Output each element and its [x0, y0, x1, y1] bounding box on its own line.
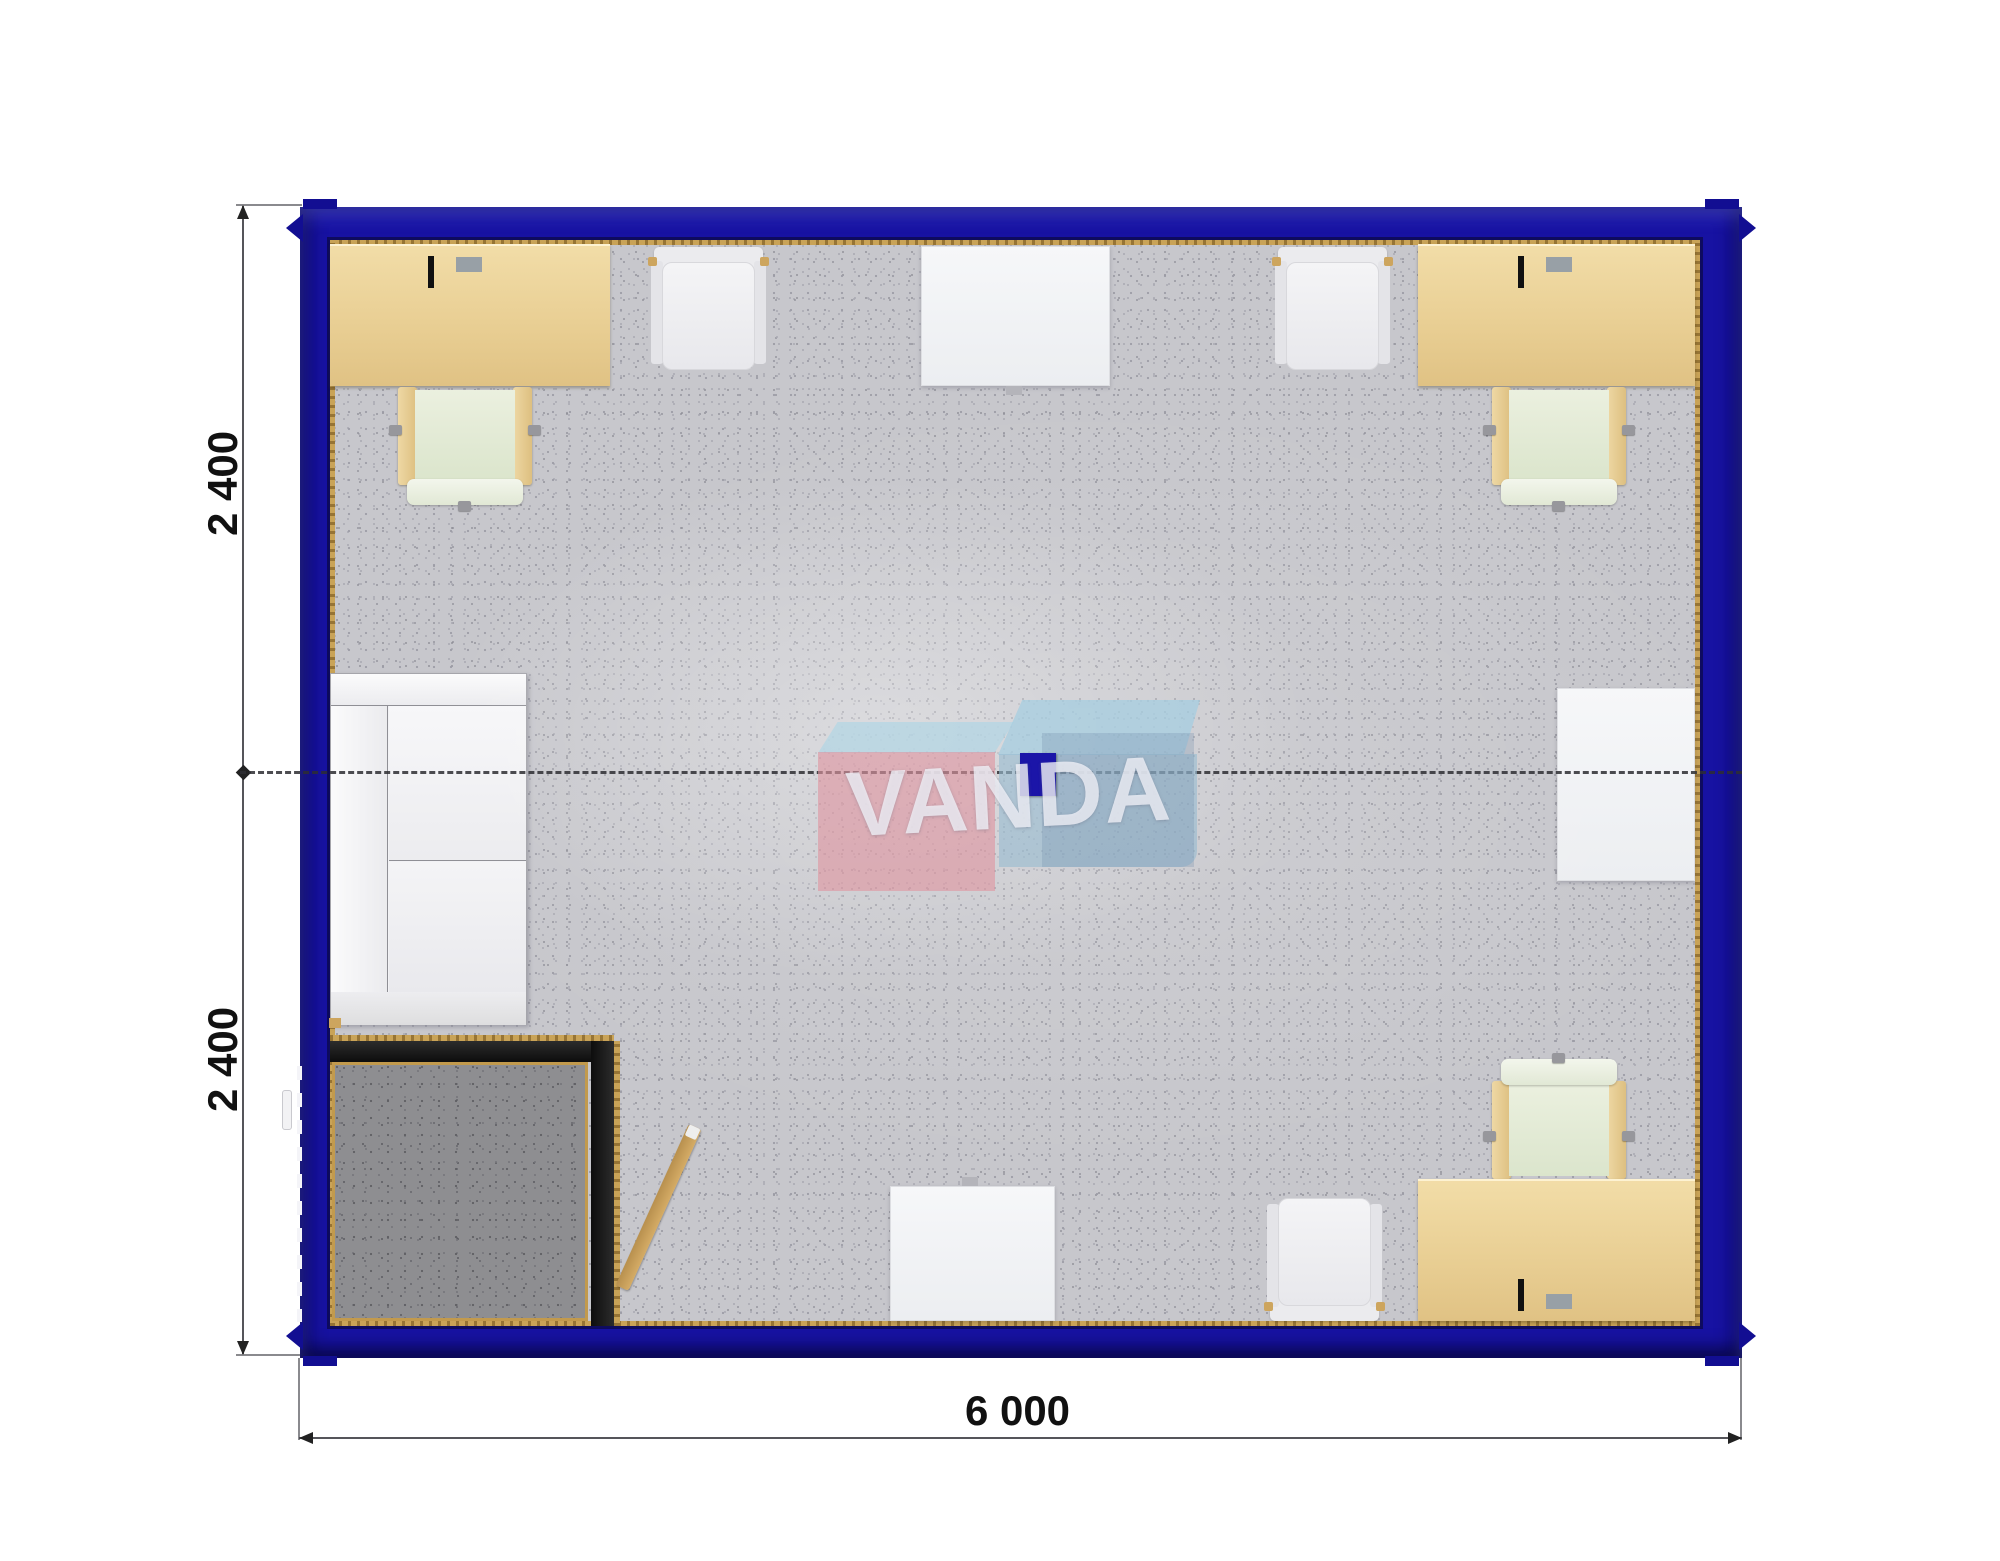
sofa-cushion — [389, 706, 526, 861]
extension-line-bottomleft — [298, 1358, 300, 1440]
dimension-label-height-bottom: 2 400 — [202, 1022, 244, 1112]
chair-armrest — [1378, 261, 1390, 364]
exterior-door-handle — [282, 1090, 292, 1130]
laptop-keyboard — [1518, 1279, 1524, 1311]
chair-seat — [662, 262, 755, 370]
exterior-door-dashes — [297, 1066, 302, 1322]
corner-tab-bottom-right — [1705, 1356, 1739, 1366]
office-chair-top-right — [1492, 387, 1626, 505]
office-chair-top-left — [398, 387, 532, 505]
white-chair-bottom — [1267, 1198, 1382, 1321]
vestibule-wall-top — [330, 1041, 614, 1062]
chair-armrest — [1370, 1204, 1382, 1307]
chair-foot — [648, 257, 657, 266]
laptop-icon — [428, 256, 510, 336]
sofa — [330, 673, 527, 1025]
chair-caster — [1622, 1131, 1635, 1141]
sofa-armrest — [331, 674, 526, 706]
dim-arrow-left — [299, 1432, 313, 1444]
chair-foot — [1384, 257, 1393, 266]
dimension-label-width: 6 000 — [955, 1390, 1080, 1432]
white-chair-top-left — [651, 247, 766, 370]
chair-seat — [1278, 1198, 1371, 1306]
chair-seat — [1509, 390, 1609, 480]
chair-caster — [528, 425, 541, 435]
corner-notch-top-right — [1739, 214, 1756, 242]
floor-plan: 2 400 2 400 6 000 — [0, 0, 2000, 1561]
white-table-bottom — [890, 1186, 1055, 1321]
dim-arrow-top — [237, 205, 249, 219]
vestibule-floor-carpet — [332, 1062, 588, 1321]
chair-caster — [389, 425, 402, 435]
dim-arrow-right — [1728, 1432, 1742, 1444]
laptop-touchpad — [456, 257, 482, 272]
chair-armrest — [513, 387, 532, 485]
sofa-skirt — [331, 992, 526, 1025]
vestibule-wall-right — [591, 1041, 614, 1326]
chair-seat — [1509, 1084, 1609, 1176]
chair-seat — [415, 390, 515, 480]
corner-notch-top-left — [286, 214, 303, 242]
dimension-label-height-top: 2 400 — [202, 446, 244, 536]
chair-foot — [1376, 1302, 1385, 1311]
dim-arrow-bottom — [237, 1341, 249, 1355]
chair-caster — [458, 501, 471, 511]
chair-caster — [1483, 1131, 1496, 1141]
corner-notch-bottom-left — [286, 1322, 303, 1350]
table-leg — [1006, 386, 1022, 395]
laptop-icon — [1518, 256, 1600, 336]
white-chair-top-right — [1275, 247, 1390, 370]
chair-foot — [760, 257, 769, 266]
laptop-keyboard — [428, 256, 434, 288]
chair-seat — [1286, 262, 1379, 370]
corner-tab-top-left — [303, 199, 337, 209]
chair-foot — [1264, 1302, 1273, 1311]
corner-notch-bottom-right — [1739, 1322, 1756, 1350]
white-table-top — [921, 246, 1110, 386]
chair-armrest — [1607, 1081, 1626, 1179]
laptop-keyboard — [1518, 256, 1524, 288]
laptop-touchpad — [1546, 1294, 1572, 1309]
wall-trim-right — [1695, 240, 1700, 1326]
table-leg — [962, 1177, 978, 1186]
chair-caster — [1622, 425, 1635, 435]
laptop-touchpad — [1546, 257, 1572, 272]
corner-tab-bottom-left — [303, 1356, 337, 1366]
extension-line-bottomright — [1740, 1358, 1742, 1440]
chair-caster — [1552, 501, 1565, 511]
horizontal-dimension-line — [299, 1437, 1742, 1439]
white-table-right — [1557, 688, 1695, 881]
sofa-cushion — [389, 862, 526, 992]
chair-armrest — [1607, 387, 1626, 485]
corner-tab-top-right — [1705, 199, 1739, 209]
wall-trim-bottom — [330, 1321, 1700, 1326]
chair-armrest — [754, 261, 766, 364]
sofa-backrest — [331, 706, 388, 992]
office-chair-bottom-right — [1492, 1059, 1626, 1179]
laptop-icon — [1518, 1231, 1600, 1311]
chair-caster — [1552, 1053, 1565, 1063]
chair-caster — [1483, 425, 1496, 435]
sofa-foot — [329, 1018, 341, 1028]
chair-foot — [1272, 257, 1281, 266]
section-dashed-line — [240, 771, 1742, 774]
